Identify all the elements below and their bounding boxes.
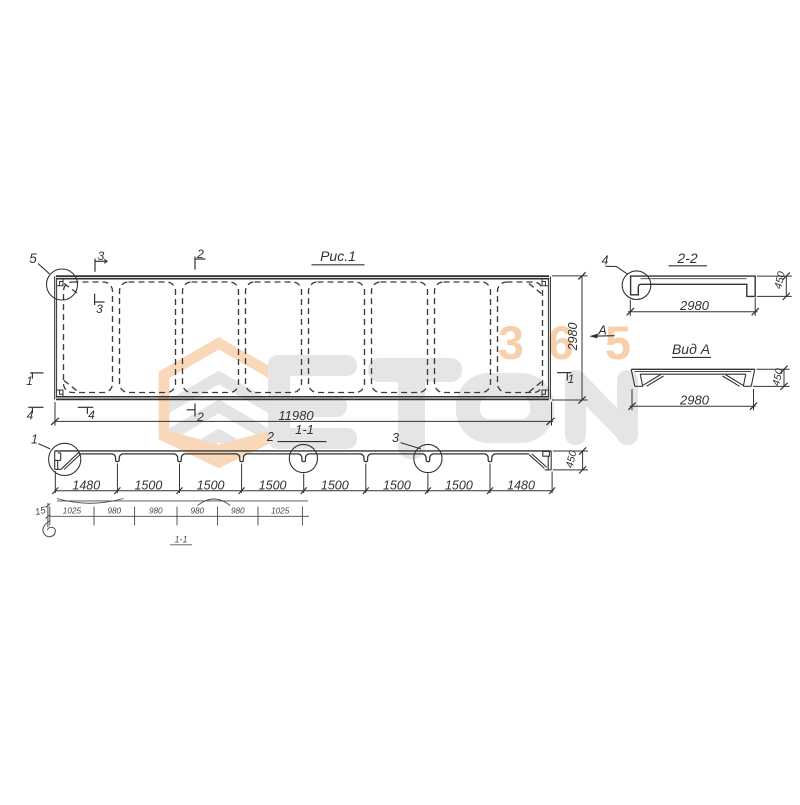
svg-text:11980: 11980 xyxy=(278,408,314,423)
svg-text:1500: 1500 xyxy=(134,478,162,492)
svg-text:2: 2 xyxy=(196,247,204,261)
svg-text:1-1: 1-1 xyxy=(295,422,314,437)
svg-text:980: 980 xyxy=(231,507,245,516)
svg-text:2-2: 2-2 xyxy=(676,250,697,266)
svg-text:A: A xyxy=(597,324,606,338)
svg-text:365: 365 xyxy=(498,316,631,369)
svg-text:Вид А: Вид А xyxy=(672,341,710,357)
svg-text:2980: 2980 xyxy=(679,298,710,313)
svg-text:Рис.1: Рис.1 xyxy=(320,248,356,264)
svg-text:1: 1 xyxy=(31,433,38,447)
svg-text:1025: 1025 xyxy=(271,507,290,516)
svg-text:980: 980 xyxy=(107,507,121,516)
svg-text:3: 3 xyxy=(96,302,103,316)
svg-text:3: 3 xyxy=(392,431,399,445)
svg-text:2: 2 xyxy=(266,430,274,444)
svg-text:1480: 1480 xyxy=(507,478,535,492)
svg-text:1500: 1500 xyxy=(197,478,225,492)
svg-text:1500: 1500 xyxy=(383,478,411,492)
svg-text:1500: 1500 xyxy=(321,478,349,492)
svg-text:3: 3 xyxy=(98,249,105,263)
svg-text:4: 4 xyxy=(27,409,34,423)
svg-text:2980: 2980 xyxy=(566,323,580,352)
svg-text:4: 4 xyxy=(88,408,95,422)
svg-text:980: 980 xyxy=(149,507,163,516)
svg-text:1500: 1500 xyxy=(259,478,287,492)
svg-text:1025: 1025 xyxy=(63,507,82,516)
svg-text:5: 5 xyxy=(29,251,37,266)
svg-text:1-1: 1-1 xyxy=(174,535,187,545)
svg-text:4: 4 xyxy=(602,254,609,268)
svg-text:1480: 1480 xyxy=(72,478,100,492)
svg-text:1: 1 xyxy=(568,372,575,386)
svg-text:1: 1 xyxy=(26,374,33,388)
svg-text:2980: 2980 xyxy=(679,393,710,408)
svg-text:1500: 1500 xyxy=(445,478,473,492)
svg-text:980: 980 xyxy=(190,507,204,516)
